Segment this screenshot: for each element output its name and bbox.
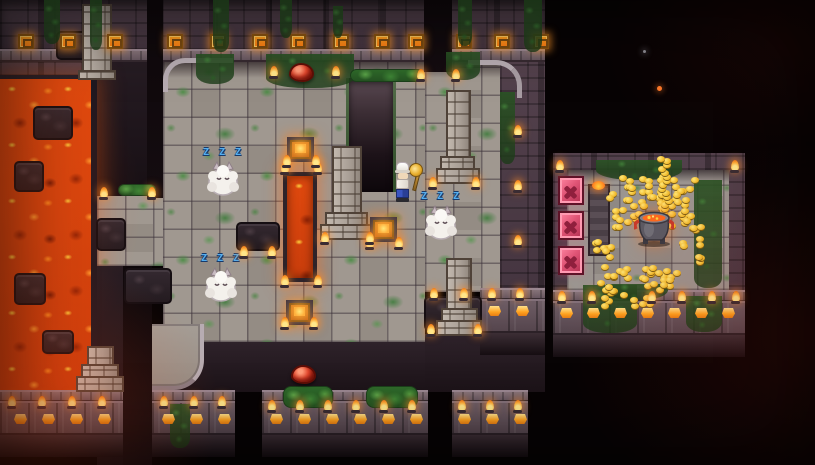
torch-flame [38,396,46,407]
torch-flame [218,396,226,407]
gold-coin [606,195,614,201]
torch-flame [283,155,291,166]
wall-lantern [98,414,111,424]
wall-lantern [270,414,283,424]
golden-pan-handle [412,175,420,191]
torch-flame [321,232,329,243]
torch-flame [678,291,686,302]
torch-flame [417,69,425,80]
torch-flame [296,400,304,411]
wall-lantern [486,414,499,424]
dark-rock [33,106,73,140]
ember-dot [657,86,662,91]
torch-flame [514,235,522,246]
gold-coin [691,177,699,183]
sleep-bubble: Z Z Z [198,253,244,264]
wall-lantern [695,308,708,318]
torch-flame [558,291,566,302]
dungeon-map: Z Z Z Z Z Z Z Z Z [0,0,815,465]
torch-flame [474,324,482,335]
ember-dot [643,50,646,53]
gold-ornament-tile [252,34,268,49]
sleeping-monster-2[interactable]: Z Z Z [204,266,238,302]
sleep-bubble: Z Z Z [200,147,246,158]
wall-lantern [298,414,311,424]
torch-flame [427,324,435,335]
game-viewport: Z Z Z Z Z Z Z Z Z [0,0,815,465]
gold-coin [619,207,627,213]
wall-fade [0,435,123,457]
monument-part [446,258,472,310]
torch-flame [270,66,278,77]
gold-coin-pile[interactable] [678,224,706,266]
torch-flame [452,69,460,80]
monument-part [76,376,124,392]
glowing-switch-tile[interactable] [287,137,314,162]
gold-coin [594,239,602,245]
torch-flame [395,237,403,248]
torch-flame [312,155,320,166]
torch-flame [732,291,740,302]
torch-flame [556,160,564,171]
wall-fade [452,435,528,457]
gold-coin [656,287,664,293]
wall-lantern [560,308,573,318]
wall-lantern [668,308,681,318]
glow-core [294,307,305,316]
wall-fade [262,435,428,457]
wall-lantern [354,414,367,424]
gold-coin [696,236,704,242]
dark-rock [96,218,126,251]
gold-ornament-tile [408,34,424,49]
gold-coin [682,197,690,203]
torch-flame [516,288,524,299]
torch-flame [268,246,276,257]
gold-coin [625,197,633,203]
glow-core [378,224,389,233]
dark-shaft-1 [147,0,163,198]
fluffy-monster-sprite [424,204,458,240]
stone-ziggurat [76,346,124,392]
hanging-vine [333,6,343,38]
sleeping-monster-1[interactable]: Z Z Z [206,160,240,196]
torch-flame [460,288,468,299]
torch-flame [488,288,496,299]
gold-coin-pile[interactable] [596,264,682,310]
torch-flame [310,317,318,328]
wall-lantern [458,414,471,424]
wall-lantern [641,308,654,318]
wall-fade [553,335,745,357]
stone-ziggurat [436,90,480,184]
wall-lantern [14,414,27,424]
gold-coin [619,175,627,181]
wall-lantern [190,414,203,424]
gold-ornament-tile [60,34,76,49]
torch-flame [514,180,522,191]
pink-x-block[interactable] [558,211,584,240]
wall-lantern [514,414,527,424]
player-character[interactable] [396,160,426,206]
gold-coin [630,297,638,303]
gold-coin [597,280,605,286]
wall-fade [480,333,545,355]
monument-part [332,146,362,214]
pink-x-block[interactable] [558,176,584,205]
wall-lantern [410,414,423,424]
torch-flame [281,317,289,328]
player-legs [396,189,409,198]
gold-ornament-tile [167,34,183,49]
gold-coin [615,224,623,230]
gold-coin [601,295,609,301]
gold-coin [660,282,668,288]
dark-rock [14,161,44,192]
wall-lantern [70,414,83,424]
hanging-vine [44,0,60,44]
gold-ornament-tile [374,34,390,49]
torch-flame [514,125,522,136]
gold-coin [666,277,674,283]
hanging-vine [524,0,542,52]
hanging-vine [280,0,292,38]
gold-ornament-tile [107,34,123,49]
gold-coin [645,183,653,189]
gold-coin [606,254,614,260]
torch-flame [100,187,108,198]
wall-lantern [382,414,395,424]
torch-flame [380,400,388,411]
wall-fade [152,435,235,457]
torch-flame [458,400,466,411]
torch-flame [268,400,276,411]
gold-coin [601,264,609,270]
torch-flame [332,66,340,77]
wall-lantern [614,308,627,318]
lantern-wall [480,299,545,333]
wall-lantern [162,414,175,424]
gold-coin [610,273,618,279]
gold-ornament-tile [18,34,34,49]
hanging-vine [90,0,102,50]
gold-coin-pile[interactable] [590,234,618,260]
curved-stone-path [150,324,204,390]
wall-lantern [516,306,529,316]
golden-pan-item [409,163,423,177]
gold-coin [696,242,704,248]
torch-flame [648,291,656,302]
torch-flame [514,400,522,411]
glowing-switch-tile[interactable] [370,217,397,242]
gold-ornament-tile [494,34,510,49]
treasure-pot[interactable] [634,204,674,248]
player-torso [396,179,409,189]
gold-coin [602,248,610,254]
green-hedge [350,69,424,82]
torch-flame [352,400,360,411]
torch-flame [190,396,198,407]
gold-coin [641,276,649,282]
wall-lantern [42,414,55,424]
hanging-vine [458,0,472,46]
gold-ornament-tile [290,34,306,49]
gold-coin [680,243,688,249]
torch-flame [486,400,494,411]
gold-coin [601,303,609,309]
torch-flame [366,232,374,243]
monument-part [87,346,114,366]
wall-lantern [722,308,735,318]
torch-flame [240,246,248,257]
pink-x-block[interactable] [558,246,584,275]
monument-part [78,70,116,80]
torch-flame [324,400,332,411]
hanging-vine [196,54,234,84]
wall-lantern [587,308,600,318]
gold-coin [697,224,705,230]
pot-sprite [634,204,674,248]
torch-flame [8,396,16,407]
torch-flame [472,177,480,188]
dark-rock [42,330,74,354]
torch-flame [429,177,437,188]
torch-flame [314,275,322,286]
fluffy-monster-sprite [204,266,238,302]
glow-core [295,144,306,153]
gold-coin [686,186,694,192]
dark-rock [14,273,46,305]
hanging-vine [213,0,229,52]
torch-flame [588,291,596,302]
wall-lantern [218,414,231,424]
gold-coin [624,219,632,225]
stone-ziggurat [320,146,374,240]
red-slime-2[interactable] [291,365,316,384]
torch-flame [430,288,438,299]
torch-flame [148,187,156,198]
torch-flame [731,160,739,171]
red-slime-1[interactable] [289,63,314,82]
gold-coin [616,217,624,223]
player-feet [396,198,409,202]
sleeping-monster-3[interactable]: Z Z Z [424,204,458,240]
lava-channel [283,172,317,282]
dark-rock [124,268,172,304]
monument-part [446,90,471,158]
torch-flame [68,396,76,407]
hanging-vine [170,404,190,448]
gold-coin [620,292,628,298]
gold-coin [605,284,613,290]
torch-flame [160,396,168,407]
torch-flame [708,291,716,302]
hanging-vine [500,92,515,164]
gold-coin [683,218,691,224]
fluffy-monster-sprite [206,160,240,196]
torch-flame [98,396,106,407]
glowing-switch-tile[interactable] [286,300,313,325]
gold-coin [673,270,681,276]
wall-lantern [488,306,501,316]
torch-flame [281,275,289,286]
torch-flame [408,400,416,411]
wall-lantern [326,414,339,424]
gold-coin [631,303,639,309]
